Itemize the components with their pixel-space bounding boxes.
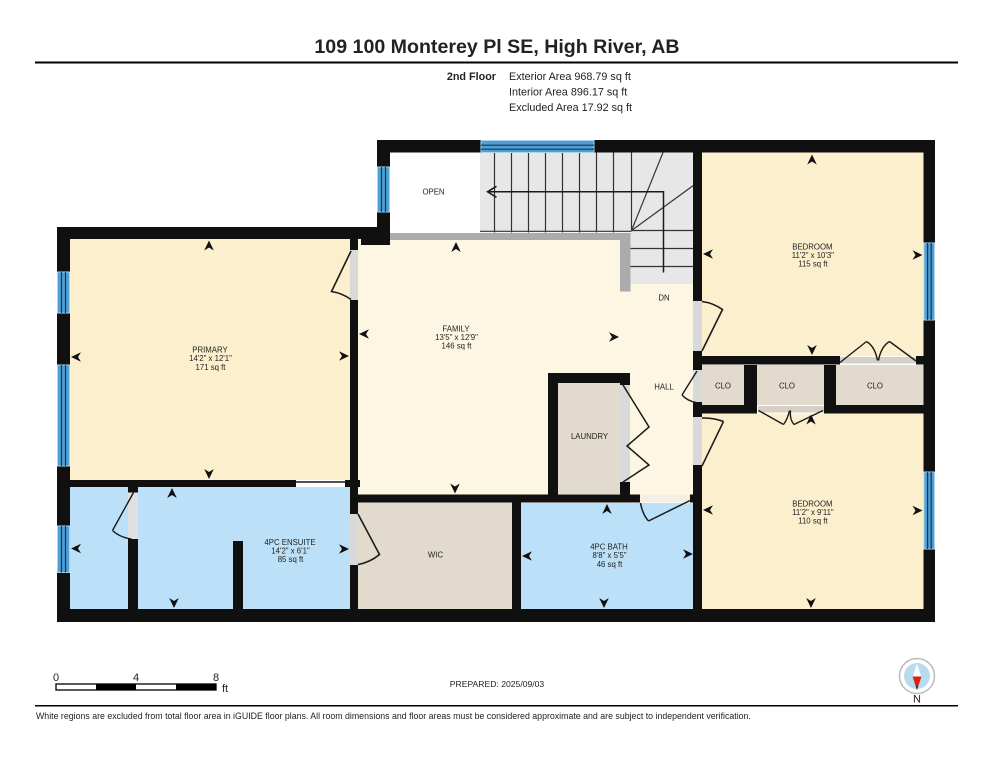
svg-text:HALL: HALL <box>654 383 674 392</box>
svg-text:CLO: CLO <box>867 382 883 391</box>
svg-text:110 sq ft: 110 sq ft <box>798 517 828 526</box>
svg-text:2nd Floor: 2nd Floor <box>447 71 497 83</box>
svg-text:0: 0 <box>53 672 59 684</box>
svg-text:DN: DN <box>658 294 669 303</box>
svg-text:115 sq ft: 115 sq ft <box>798 260 828 269</box>
svg-text:171 sq ft: 171 sq ft <box>196 363 227 372</box>
svg-text:CLO: CLO <box>779 382 795 391</box>
svg-text:14'2" x 12'1": 14'2" x 12'1" <box>189 354 232 363</box>
svg-text:85 sq ft: 85 sq ft <box>278 555 304 564</box>
svg-text:CLO: CLO <box>715 382 731 391</box>
svg-text:Exterior Area 968.79 sq ft: Exterior Area 968.79 sq ft <box>509 71 631 83</box>
svg-text:Interior Area 896.17 sq ft: Interior Area 896.17 sq ft <box>509 87 627 99</box>
svg-text:N: N <box>913 694 921 706</box>
svg-text:PRIMARY: PRIMARY <box>192 346 228 355</box>
svg-text:109 100 Monterey Pl SE, High R: 109 100 Monterey Pl SE, High River, AB <box>314 36 679 58</box>
svg-text:LAUNDRY: LAUNDRY <box>571 432 609 441</box>
svg-text:14'2" x 6'1": 14'2" x 6'1" <box>271 547 310 556</box>
svg-text:4: 4 <box>133 672 139 684</box>
svg-text:4PC ENSUITE: 4PC ENSUITE <box>264 538 315 547</box>
svg-text:WIC: WIC <box>428 551 444 560</box>
svg-text:PREPARED: 2025/09/03: PREPARED: 2025/09/03 <box>450 679 545 689</box>
svg-text:White regions are excluded fro: White regions are excluded from total fl… <box>36 711 751 721</box>
svg-text:46 sq ft: 46 sq ft <box>597 560 623 569</box>
svg-text:Excluded Area 17.92 sq ft: Excluded Area 17.92 sq ft <box>509 102 632 114</box>
svg-text:OPEN: OPEN <box>422 188 444 197</box>
svg-text:ft: ft <box>222 683 228 695</box>
svg-text:8: 8 <box>213 672 219 684</box>
svg-text:146 sq ft: 146 sq ft <box>442 342 473 351</box>
